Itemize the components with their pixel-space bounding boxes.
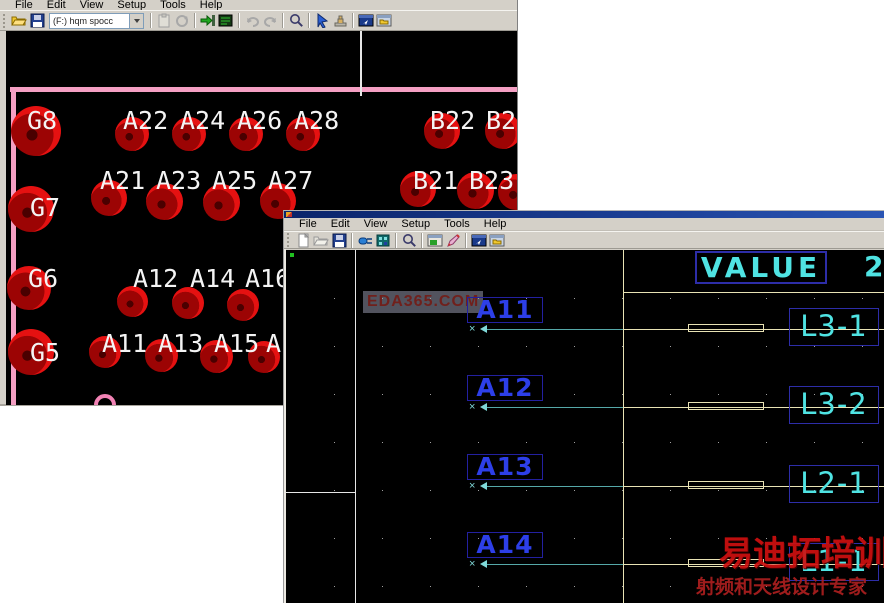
title-bar[interactable] xyxy=(284,211,884,218)
grid-dot xyxy=(430,346,431,347)
grid-dot xyxy=(862,298,863,299)
grid-dot xyxy=(334,586,335,587)
net-origin-marker: × xyxy=(469,324,475,334)
app-icon xyxy=(286,212,292,217)
grid-dot xyxy=(430,394,431,395)
toolbar-separator xyxy=(194,13,196,28)
pad-label-A21[interactable]: A21 xyxy=(100,168,145,193)
toolbar-separator xyxy=(465,233,467,248)
pin-symbol-A12[interactable] xyxy=(688,402,764,410)
schematic-canvas[interactable]: VALUE 2 EDA365.COM ×A11L3-1×A12L3-2×A13L… xyxy=(286,250,884,603)
pad-label-B21[interactable]: B21 xyxy=(413,168,458,193)
pad-label-A23[interactable]: A23 xyxy=(156,168,201,193)
net-wire-L2-1[interactable] xyxy=(483,486,623,487)
menu-tools[interactable]: Tools xyxy=(437,218,477,230)
pad-label-B22[interactable]: B22 xyxy=(430,108,475,133)
pad-label-A28[interactable]: A28 xyxy=(294,108,339,133)
sheet-divider-horizontal xyxy=(286,492,355,493)
toolbar: (F:) hqm spocc xyxy=(0,10,517,31)
grid-dot xyxy=(670,346,671,347)
pin-label-A13[interactable]: A13 xyxy=(467,454,543,480)
pad-label-G8[interactable]: G8 xyxy=(27,108,57,133)
menu-view[interactable]: View xyxy=(73,1,111,10)
grid-dot xyxy=(430,586,431,587)
grid-dot xyxy=(670,298,671,299)
grid-dot xyxy=(862,442,863,443)
save-icon[interactable] xyxy=(330,232,348,249)
grid-dot xyxy=(334,538,335,539)
part-outline-left[interactable] xyxy=(623,250,624,603)
grid-dot xyxy=(574,586,575,587)
grid-dot xyxy=(430,538,431,539)
grid-dot xyxy=(382,394,383,395)
value-number[interactable]: 2 xyxy=(864,251,883,282)
grid-dot xyxy=(814,442,815,443)
grid-dot xyxy=(814,346,815,347)
pin-label-A11[interactable]: A11 xyxy=(467,297,543,323)
grid-dot xyxy=(478,586,479,587)
combo-dropdown-button[interactable] xyxy=(129,14,143,28)
grid-dot xyxy=(382,538,383,539)
pad-label-G5[interactable]: G5 xyxy=(30,340,60,365)
toolbar-separator xyxy=(351,233,353,248)
pad-label-B23[interactable]: B23 xyxy=(469,168,514,193)
stamp-icon[interactable] xyxy=(331,12,349,29)
toolbar-separator xyxy=(238,13,240,28)
menu-edit[interactable]: Edit xyxy=(40,1,73,10)
origin-marker xyxy=(290,253,294,257)
pin-symbol-A11[interactable] xyxy=(688,324,764,332)
board-outline-top[interactable] xyxy=(10,87,517,92)
grid-dot xyxy=(622,394,623,395)
pcb-pad[interactable] xyxy=(227,289,259,321)
window-arrow-icon[interactable] xyxy=(470,232,488,249)
import-arrow-icon[interactable] xyxy=(199,12,217,29)
sheet-divider-vertical xyxy=(355,250,356,603)
net-arrowhead xyxy=(476,403,487,411)
grid-dot xyxy=(766,394,767,395)
net-label-L3-1[interactable]: L3-1 xyxy=(789,308,879,346)
refresh-icon[interactable] xyxy=(173,12,191,29)
net-wire-L3-1[interactable] xyxy=(483,329,623,330)
grid-dot xyxy=(574,538,575,539)
menu-bar: FileEditViewSetupToolsHelp xyxy=(284,218,884,231)
net-origin-marker: × xyxy=(469,481,475,491)
grid-dot xyxy=(574,298,575,299)
new-icon[interactable] xyxy=(294,232,312,249)
grid-dot xyxy=(718,490,719,491)
grid-dot xyxy=(574,346,575,347)
zoom-icon[interactable] xyxy=(400,232,418,249)
select-cursor-icon[interactable] xyxy=(313,12,331,29)
redo-icon[interactable] xyxy=(261,12,279,29)
grid-dot xyxy=(718,394,719,395)
net-wire-L3-2[interactable] xyxy=(483,407,623,408)
toolbar-grip[interactable] xyxy=(3,14,7,28)
grid-dot xyxy=(526,442,527,443)
window-folder-icon[interactable] xyxy=(375,12,393,29)
grid-dot xyxy=(766,346,767,347)
grid-dot xyxy=(718,442,719,443)
grid-dot xyxy=(670,586,671,587)
net-origin-marker: × xyxy=(469,559,475,569)
toolbar-separator xyxy=(150,13,152,28)
panel-divider-line xyxy=(360,31,362,96)
grid-dot xyxy=(526,490,527,491)
grid-dot xyxy=(670,442,671,443)
open-folder-icon[interactable] xyxy=(10,12,28,29)
grid-dot xyxy=(718,298,719,299)
pad-label-G7[interactable]: G7 xyxy=(30,195,60,220)
grid-dot xyxy=(766,298,767,299)
grid-dot xyxy=(334,442,335,443)
grid-dot xyxy=(670,538,671,539)
zoom-icon[interactable] xyxy=(287,12,305,29)
pad-label-A27[interactable]: A27 xyxy=(268,168,313,193)
net-label-L3-2[interactable]: L3-2 xyxy=(789,386,879,424)
value-attribute-label[interactable]: VALUE xyxy=(695,251,827,284)
pin-label-A12[interactable]: A12 xyxy=(467,375,543,401)
undo-icon[interactable] xyxy=(243,12,261,29)
grid-dot xyxy=(766,442,767,443)
grid-dot xyxy=(334,298,335,299)
toolbar-grip[interactable] xyxy=(287,233,291,247)
menu-setup[interactable]: Setup xyxy=(394,218,437,230)
grid-dot xyxy=(622,490,623,491)
grid-dot xyxy=(478,442,479,443)
grid-dot xyxy=(622,586,623,587)
toolbar-separator xyxy=(282,13,284,28)
grid-dot xyxy=(622,442,623,443)
pad-label-B24[interactable]: B24 xyxy=(486,108,517,133)
toolbar xyxy=(284,231,884,249)
grid-dot xyxy=(478,346,479,347)
toolbar-separator xyxy=(352,13,354,28)
pad-label-A14[interactable]: A14 xyxy=(190,266,235,291)
layer-combo-value: (F:) hqm spocc xyxy=(50,14,129,28)
menu-file[interactable]: File xyxy=(292,218,324,230)
pad-label-A24[interactable]: A24 xyxy=(180,108,225,133)
board-arc[interactable] xyxy=(94,394,116,405)
grid-dot xyxy=(334,346,335,347)
board-icon[interactable] xyxy=(217,12,235,29)
grid-dot xyxy=(622,346,623,347)
grid-dot xyxy=(334,490,335,491)
toolbar-separator xyxy=(308,13,310,28)
eda365-watermark: EDA365.COM xyxy=(363,291,483,313)
window-green-icon[interactable] xyxy=(426,232,444,249)
menu-edit[interactable]: Edit xyxy=(324,218,357,230)
desktop: { "back_window": { "menu": ["File","Edit… xyxy=(0,0,884,603)
brand-watermark-line2: 射频和天线设计专家 xyxy=(696,577,867,598)
grid-dot xyxy=(670,394,671,395)
grid-dot xyxy=(670,490,671,491)
grid-dot xyxy=(430,490,431,491)
menu-tools[interactable]: Tools xyxy=(153,1,193,10)
layer-combo[interactable]: (F:) hqm spocc xyxy=(49,13,144,29)
grid-dot xyxy=(574,394,575,395)
grid-dot xyxy=(382,346,383,347)
grid-dot xyxy=(334,394,335,395)
window-arrow-icon[interactable] xyxy=(357,12,375,29)
footprint-icon[interactable] xyxy=(374,232,392,249)
pad-label-A13[interactable]: A13 xyxy=(158,331,203,356)
schematic-window: FileEditViewSetupToolsHelp VALUE 2 EDA36… xyxy=(283,210,884,603)
brand-watermark-line1: 易迪拓培训 xyxy=(719,535,884,573)
net-origin-marker: × xyxy=(469,402,475,412)
grid-dot xyxy=(526,586,527,587)
net-arrowhead xyxy=(476,482,487,490)
menu-help[interactable]: Help xyxy=(477,218,514,230)
grid-dot xyxy=(622,538,623,539)
grid-dot xyxy=(382,298,383,299)
pin-symbol-A13[interactable] xyxy=(688,481,764,489)
pad-label-A15[interactable]: A15 xyxy=(214,331,259,356)
grid-dot xyxy=(478,490,479,491)
pad-label-G6[interactable]: G6 xyxy=(28,266,58,291)
net-arrowhead xyxy=(476,325,487,333)
net-arrowhead xyxy=(476,560,487,568)
grid-dot xyxy=(382,442,383,443)
grid-dot xyxy=(430,442,431,443)
grid-dot xyxy=(574,442,575,443)
grid-dot xyxy=(430,298,431,299)
pen-icon[interactable] xyxy=(444,232,462,249)
pad-label-A11[interactable]: A11 xyxy=(102,331,147,356)
part-outline-top[interactable] xyxy=(623,292,884,293)
menu-view[interactable]: View xyxy=(357,218,395,230)
pin-label-A14[interactable]: A14 xyxy=(467,532,543,558)
grid-dot xyxy=(862,346,863,347)
grid-dot xyxy=(622,298,623,299)
net-wire-L1-1[interactable] xyxy=(483,564,623,565)
menu-file[interactable]: File xyxy=(8,1,40,10)
grid-dot xyxy=(766,490,767,491)
menu-setup[interactable]: Setup xyxy=(110,1,153,10)
open-folder-gray-icon[interactable] xyxy=(312,232,330,249)
paste-icon[interactable] xyxy=(155,12,173,29)
toolbar-separator xyxy=(421,233,423,248)
grid-dot xyxy=(382,490,383,491)
grid-dot xyxy=(574,490,575,491)
pad-label-A25[interactable]: A25 xyxy=(212,168,257,193)
save-icon[interactable] xyxy=(28,12,46,29)
connector-icon[interactable] xyxy=(356,232,374,249)
pad-label-A26[interactable]: A26 xyxy=(237,108,282,133)
toolbar-separator xyxy=(395,233,397,248)
menu-bar: FileEditViewSetupToolsHelp xyxy=(0,0,517,10)
grid-dot xyxy=(814,298,815,299)
net-label-L2-1[interactable]: L2-1 xyxy=(789,465,879,503)
pad-label-A12[interactable]: A12 xyxy=(133,266,178,291)
grid-dot xyxy=(526,346,527,347)
grid-dot xyxy=(382,586,383,587)
menu-help[interactable]: Help xyxy=(193,1,230,10)
window-folder-icon[interactable] xyxy=(488,232,506,249)
pad-label-A22[interactable]: A22 xyxy=(123,108,168,133)
grid-dot xyxy=(718,346,719,347)
